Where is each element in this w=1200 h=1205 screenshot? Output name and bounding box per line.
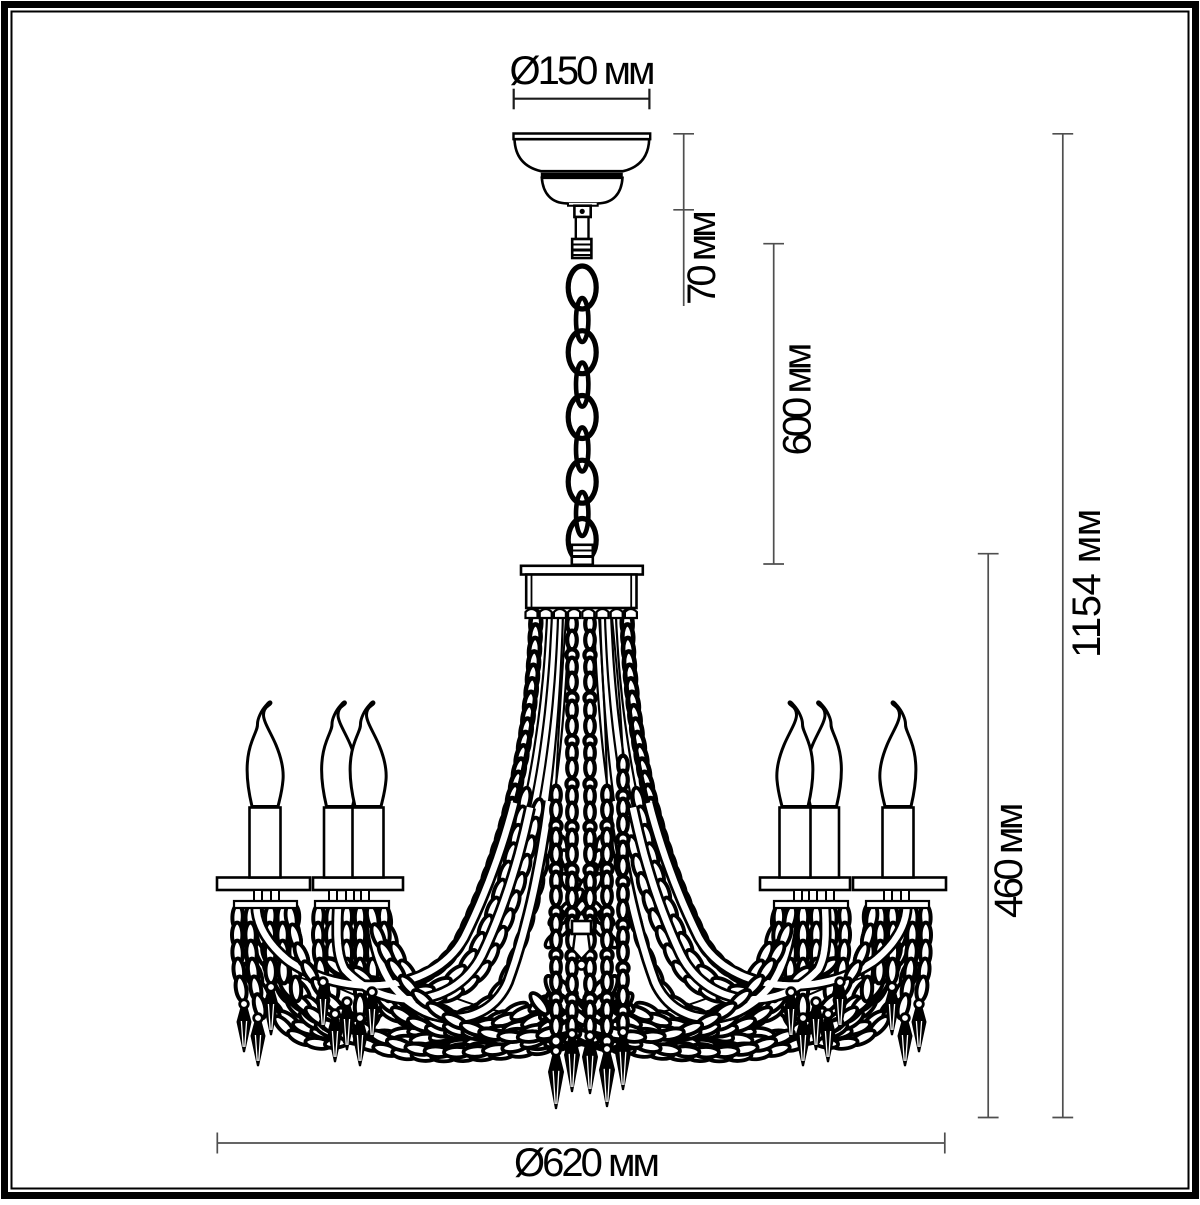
svg-text:Ø150 мм: Ø150 мм — [510, 49, 653, 93]
svg-text:70 мм: 70 мм — [680, 213, 724, 305]
svg-text:1154 мм: 1154 мм — [1065, 509, 1109, 658]
svg-text:600 мм: 600 мм — [776, 345, 820, 455]
svg-text:Ø620 мм: Ø620 мм — [514, 1141, 657, 1185]
svg-text:460 мм: 460 мм — [987, 805, 1031, 918]
